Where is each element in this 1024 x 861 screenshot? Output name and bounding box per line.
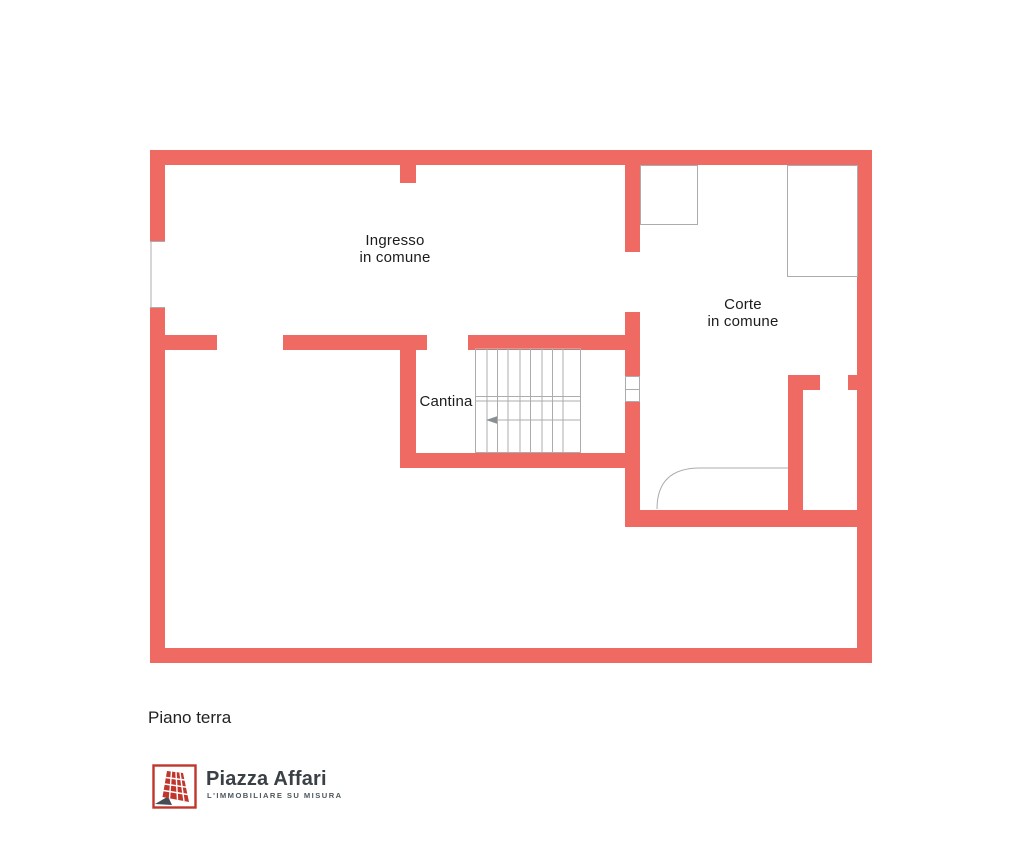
building-grid-icon <box>152 764 197 809</box>
wall-outer-right <box>857 165 872 648</box>
floor-title: Piano terra <box>148 708 231 728</box>
door-swing-arc-icon <box>657 468 788 509</box>
wall-outer-left-upper <box>150 165 165 241</box>
wall-stair-top <box>468 335 625 350</box>
wall-divider-upper <box>625 165 640 252</box>
wall-interior-middle <box>283 335 427 350</box>
wall-outer-left-lower <box>150 308 165 648</box>
room-label-corte: Corte in comune <box>663 297 823 330</box>
room-label-ingresso: Ingresso in comune <box>315 233 475 266</box>
room-label-ingresso-line1: Ingresso <box>315 233 475 250</box>
projection-outline-large <box>788 166 858 277</box>
room-label-ingresso-line2: in comune <box>315 250 475 267</box>
projection-outline-small <box>641 166 698 225</box>
brand-tagline: L'IMMOBILIARE SU MISURA <box>207 791 343 800</box>
stair-direction-arrow-icon <box>486 416 497 424</box>
wall-outer-top <box>150 150 872 165</box>
wall-top-stub <box>400 165 416 183</box>
floor-plan-canvas <box>0 0 1024 861</box>
room-label-cantina-line1: Cantina <box>366 394 526 411</box>
wall-corte-bottom <box>625 510 872 527</box>
wall-stair-bottom <box>400 453 640 468</box>
brand-name: Piazza Affari <box>206 768 327 791</box>
wall-small-room-top <box>788 375 820 390</box>
wall-divider-middle <box>625 312 640 376</box>
room-label-corte-line1: Corte <box>663 297 823 314</box>
wall-small-room-left <box>788 375 803 510</box>
room-label-corte-line2: in comune <box>663 314 823 331</box>
wall-small-room-stub <box>848 375 857 390</box>
wall-interior-left-stub <box>165 335 217 350</box>
floor-plan-page: Ingresso in comune Corte in comune Canti… <box>0 0 1024 861</box>
room-label-cantina: Cantina <box>366 394 526 411</box>
wall-outer-bottom <box>150 648 872 663</box>
